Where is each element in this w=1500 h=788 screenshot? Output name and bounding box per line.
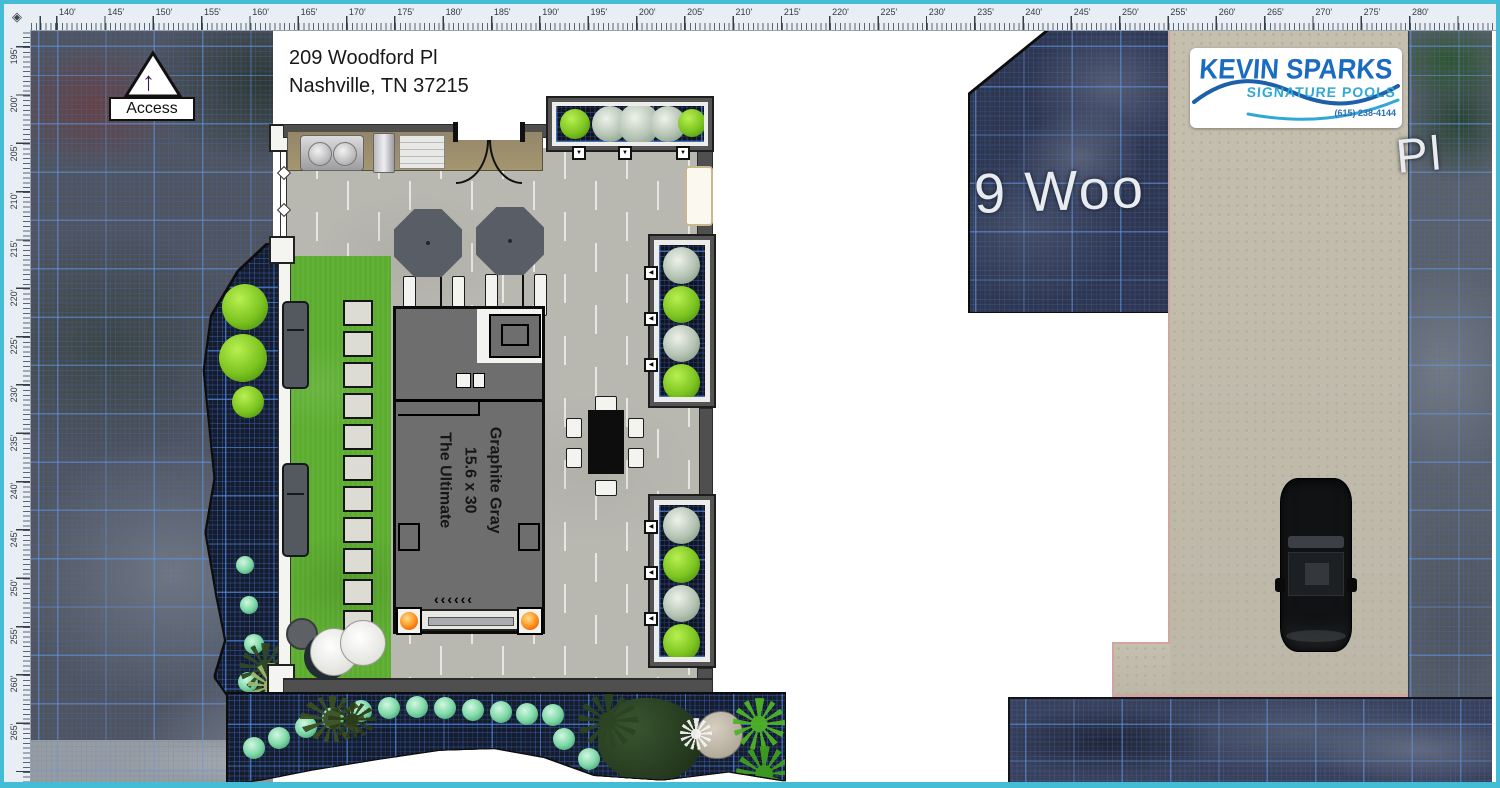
stepping-stone bbox=[343, 393, 373, 419]
ruler-label: 255' bbox=[1170, 7, 1187, 17]
shrub bbox=[222, 284, 268, 330]
ruler-label: 235' bbox=[9, 426, 23, 460]
door-jamb bbox=[453, 122, 458, 142]
ruler-origin-button[interactable]: ◈ bbox=[4, 4, 30, 30]
ruler-label: 240' bbox=[1025, 7, 1042, 17]
dining-chair[interactable] bbox=[566, 418, 582, 438]
truck-mirror bbox=[1347, 578, 1357, 592]
grill bbox=[300, 135, 364, 171]
ruler-label: 260' bbox=[9, 667, 23, 701]
ruler-label: 180' bbox=[446, 7, 463, 17]
ruler-label: 205' bbox=[9, 136, 23, 170]
address-line2: Nashville, TN 37215 bbox=[289, 72, 469, 100]
truck-mirror bbox=[1275, 578, 1285, 592]
sprinkler-icon: ◀ bbox=[644, 612, 658, 626]
sprinkler-icon: ▼ bbox=[676, 146, 690, 160]
ruler-label: 215' bbox=[9, 232, 23, 266]
dining-chair[interactable] bbox=[566, 448, 582, 468]
origin-diamond-icon: ◈ bbox=[12, 9, 22, 25]
stepping-stone bbox=[343, 517, 373, 543]
ruler-label: 210' bbox=[9, 184, 23, 218]
ruler-label: 160' bbox=[252, 7, 269, 17]
wall-right-mid bbox=[699, 408, 713, 496]
ruler-label: 280' bbox=[1412, 7, 1429, 17]
street-label-partial: 9 Woo bbox=[973, 155, 1146, 226]
sprinkler-icon: ▼ bbox=[618, 146, 632, 160]
shrub bbox=[663, 585, 700, 622]
satellite-photo-street: 9 Woo bbox=[970, 30, 1170, 312]
shrub bbox=[560, 109, 590, 139]
sprinkler-icon: ◀ bbox=[644, 358, 658, 372]
shrub bbox=[663, 325, 700, 362]
ruler-label: 165' bbox=[301, 7, 318, 17]
ruler-label: 260' bbox=[1219, 7, 1236, 17]
pool-label: Graphite Gray 15.6 x 30 The Ultimate bbox=[396, 375, 542, 585]
bench[interactable] bbox=[685, 166, 713, 226]
ruler-label: 195' bbox=[9, 39, 23, 73]
company-logo-card[interactable]: KEVIN SPARKS SIGNATURE POOLS (615) 238-4… bbox=[1190, 48, 1402, 128]
shrub bbox=[378, 697, 400, 719]
ruler-label: 185' bbox=[494, 7, 511, 17]
stepping-stone bbox=[343, 300, 373, 326]
pool-label-line: 15.6 x 30 bbox=[457, 427, 482, 534]
dining-table[interactable] bbox=[588, 410, 624, 474]
logo-phone: (615) 238-4144 bbox=[1300, 108, 1396, 118]
ruler-vertical[interactable]: 195'200'205'210'215'220'225'230'235'240'… bbox=[4, 30, 31, 784]
shrub bbox=[663, 364, 700, 397]
shrub bbox=[219, 334, 267, 382]
shrub bbox=[268, 727, 290, 749]
ruler-label: 255' bbox=[9, 619, 23, 653]
shrub bbox=[236, 556, 254, 574]
ruler-label: 230' bbox=[929, 7, 946, 17]
shrub bbox=[663, 507, 700, 544]
ruler-label: 195' bbox=[591, 7, 608, 17]
stepping-stone bbox=[343, 548, 373, 574]
umbrella-pole bbox=[508, 239, 512, 243]
shrub bbox=[232, 386, 264, 418]
spa-step bbox=[501, 324, 529, 346]
street-label-partial: Pl bbox=[1394, 126, 1445, 185]
north-arrow-icon: ↑ bbox=[142, 66, 155, 97]
dining-chair[interactable] bbox=[628, 418, 644, 438]
shrub bbox=[663, 546, 700, 583]
white-accent-plant bbox=[680, 718, 712, 750]
planter-right-upper bbox=[648, 234, 716, 408]
ruler-label: 205' bbox=[687, 7, 704, 17]
ruler-label: 220' bbox=[9, 281, 23, 315]
pickup-truck[interactable] bbox=[1280, 478, 1352, 652]
dining-chair[interactable] bbox=[595, 480, 617, 496]
map-grid-overlay bbox=[1010, 699, 1492, 784]
access-label: Access bbox=[109, 97, 195, 121]
design-canvas[interactable]: ‹‹‹‹‹‹ Graphite Gray 15.6 x 30 The Ultim… bbox=[0, 0, 1500, 788]
shrub bbox=[663, 286, 700, 323]
shrub bbox=[240, 596, 258, 614]
stepping-stone bbox=[343, 424, 373, 450]
ornamental-grass bbox=[328, 702, 376, 738]
kitchen-appliance bbox=[399, 135, 445, 169]
truck-windshield bbox=[1288, 536, 1344, 548]
lounge-chair[interactable] bbox=[282, 301, 309, 389]
ruler-label: 240' bbox=[9, 474, 23, 508]
pool-light-orange bbox=[396, 607, 422, 635]
bottom-planting-bed bbox=[228, 694, 785, 784]
ruler-label: 250' bbox=[1122, 7, 1139, 17]
stepping-stone bbox=[343, 362, 373, 388]
ruler-label: 200' bbox=[9, 87, 23, 121]
sprinkler-icon: ◀ bbox=[644, 266, 658, 280]
pool-autocover bbox=[420, 609, 520, 631]
address-line1: 209 Woodford Pl bbox=[289, 44, 469, 72]
ruler-label: 225' bbox=[880, 7, 897, 17]
shrub bbox=[663, 624, 700, 657]
ruler-label: 215' bbox=[784, 7, 801, 17]
logo-tagline: SIGNATURE POOLS bbox=[1229, 84, 1396, 100]
ruler-label: 170' bbox=[349, 7, 366, 17]
ruler-label: 225' bbox=[9, 329, 23, 363]
planter-top bbox=[546, 96, 714, 152]
ruler-label: 150' bbox=[156, 7, 173, 17]
tree-fronds bbox=[578, 694, 638, 748]
dining-chair[interactable] bbox=[628, 448, 644, 468]
door-jamb bbox=[520, 122, 525, 142]
shrub bbox=[663, 247, 700, 284]
pool-steps-chevrons-icon: ‹‹‹‹‹‹ bbox=[434, 591, 504, 607]
ruler-label: 210' bbox=[735, 7, 752, 17]
pool-label-line: Graphite Gray bbox=[481, 427, 506, 534]
umbrella-pole bbox=[426, 241, 430, 245]
ruler-label: 220' bbox=[832, 7, 849, 17]
shrub bbox=[678, 109, 704, 137]
ruler-label: 155' bbox=[204, 7, 221, 17]
ruler-label: 140' bbox=[59, 7, 76, 17]
stepping-stone bbox=[343, 331, 373, 357]
shrub bbox=[243, 737, 265, 759]
stepping-stone bbox=[343, 455, 373, 481]
shrub bbox=[406, 696, 428, 718]
fence-post bbox=[269, 236, 295, 264]
ruler-label: 245' bbox=[1074, 7, 1091, 17]
ruler-label: 200' bbox=[639, 7, 656, 17]
shrub bbox=[434, 697, 456, 719]
sprinkler-icon: ◀ bbox=[644, 566, 658, 580]
planter-right-lower bbox=[648, 494, 716, 668]
shrub bbox=[490, 701, 512, 723]
shrub bbox=[516, 703, 538, 725]
ruler-label: 175' bbox=[397, 7, 414, 17]
shrub bbox=[578, 748, 600, 770]
french-door-opening bbox=[453, 122, 525, 140]
ruler-label: 145' bbox=[107, 7, 124, 17]
ruler-label: 265' bbox=[9, 715, 23, 749]
stepping-stone bbox=[343, 486, 373, 512]
satellite-photo-bottom-right bbox=[1008, 697, 1492, 784]
ruler-label: 245' bbox=[9, 522, 23, 556]
logo-company-name: KEVIN SPARKS bbox=[1190, 53, 1402, 86]
ruler-label: 190' bbox=[542, 7, 559, 17]
ruler-label: 275' bbox=[1364, 7, 1381, 17]
ruler-horizontal[interactable]: 140'145'150'155'160'165'170'175'180'185'… bbox=[30, 4, 1496, 31]
driveway-apron bbox=[1112, 642, 1170, 697]
ruler-label: 235' bbox=[977, 7, 994, 17]
shrub bbox=[553, 728, 575, 750]
pool[interactable]: ‹‹‹‹‹‹ Graphite Gray 15.6 x 30 The Ultim… bbox=[393, 306, 545, 634]
lounge-chair[interactable] bbox=[282, 463, 309, 557]
kitchen-cylinder bbox=[373, 133, 395, 173]
site-address[interactable]: 209 Woodford Pl Nashville, TN 37215 bbox=[289, 44, 469, 100]
fence-line bbox=[280, 148, 287, 240]
fern bbox=[733, 698, 785, 750]
shrub bbox=[462, 699, 484, 721]
round-chair[interactable] bbox=[340, 620, 386, 666]
ruler-label: 230' bbox=[9, 377, 23, 411]
sprinkler-icon: ▼ bbox=[572, 146, 586, 160]
ruler-label: 265' bbox=[1267, 7, 1284, 17]
truck-bed bbox=[1288, 552, 1344, 596]
sprinkler-icon: ◀ bbox=[644, 312, 658, 326]
ruler-label: 270' bbox=[1315, 7, 1332, 17]
ruler-label: 250' bbox=[9, 571, 23, 605]
shrub bbox=[542, 704, 564, 726]
pool-light-orange bbox=[517, 607, 543, 635]
stepping-stone bbox=[343, 579, 373, 605]
truck-hood-highlight bbox=[1286, 630, 1346, 642]
sprinkler-icon: ◀ bbox=[644, 520, 658, 534]
pool-label-line: The Ultimate bbox=[432, 427, 457, 534]
